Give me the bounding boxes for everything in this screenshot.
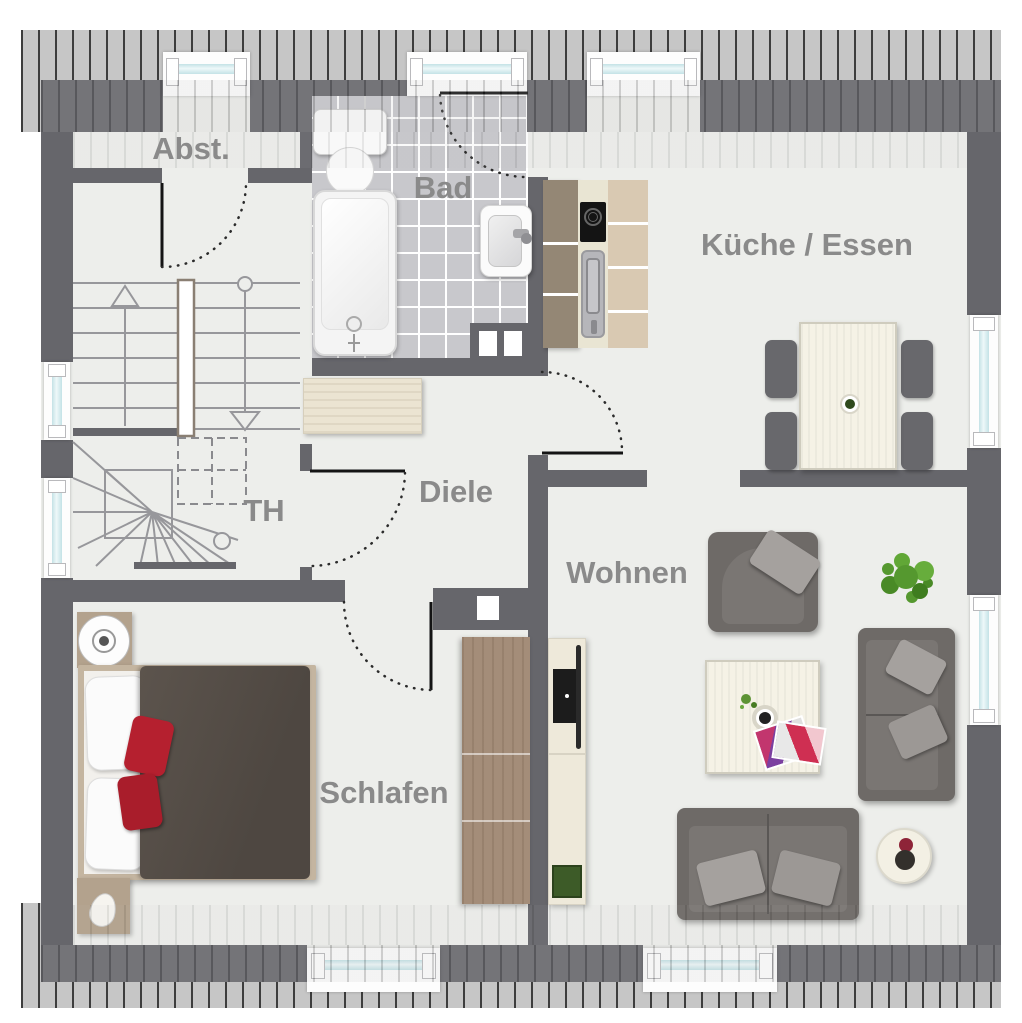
door-swing-arcs bbox=[162, 95, 622, 690]
door-arc-kueche bbox=[542, 372, 622, 450]
stair-dashed-outline bbox=[178, 438, 246, 504]
door-leaves bbox=[162, 93, 623, 690]
room-label-abstellraum: Abst. bbox=[152, 131, 230, 167]
roof-overhang-shade-top bbox=[41, 80, 1001, 132]
roof-overhang-shade-bottom-floor bbox=[73, 905, 967, 945]
stair-landing-edge bbox=[73, 428, 178, 436]
floor-plan: Abst. Bad Küche / Essen TH Diele Wohnen … bbox=[0, 0, 1022, 1023]
door-arc-abstellraum bbox=[162, 183, 246, 267]
room-label-schlafen: Schlafen bbox=[319, 775, 448, 811]
stair-divider bbox=[178, 280, 194, 436]
roof-overhang-shade-bottom bbox=[41, 945, 1001, 982]
room-label-kueche-essen: Küche / Essen bbox=[701, 227, 913, 263]
winder-bottom-edge bbox=[134, 562, 236, 569]
winder-stair bbox=[73, 442, 238, 566]
room-label-bad: Bad bbox=[414, 170, 473, 206]
door-arc-th bbox=[310, 473, 405, 566]
room-label-diele: Diele bbox=[419, 474, 493, 510]
room-label-wohnen: Wohnen bbox=[566, 555, 688, 591]
door-arc-schlafen bbox=[344, 602, 432, 690]
room-label-treppenhaus: TH bbox=[243, 493, 284, 529]
